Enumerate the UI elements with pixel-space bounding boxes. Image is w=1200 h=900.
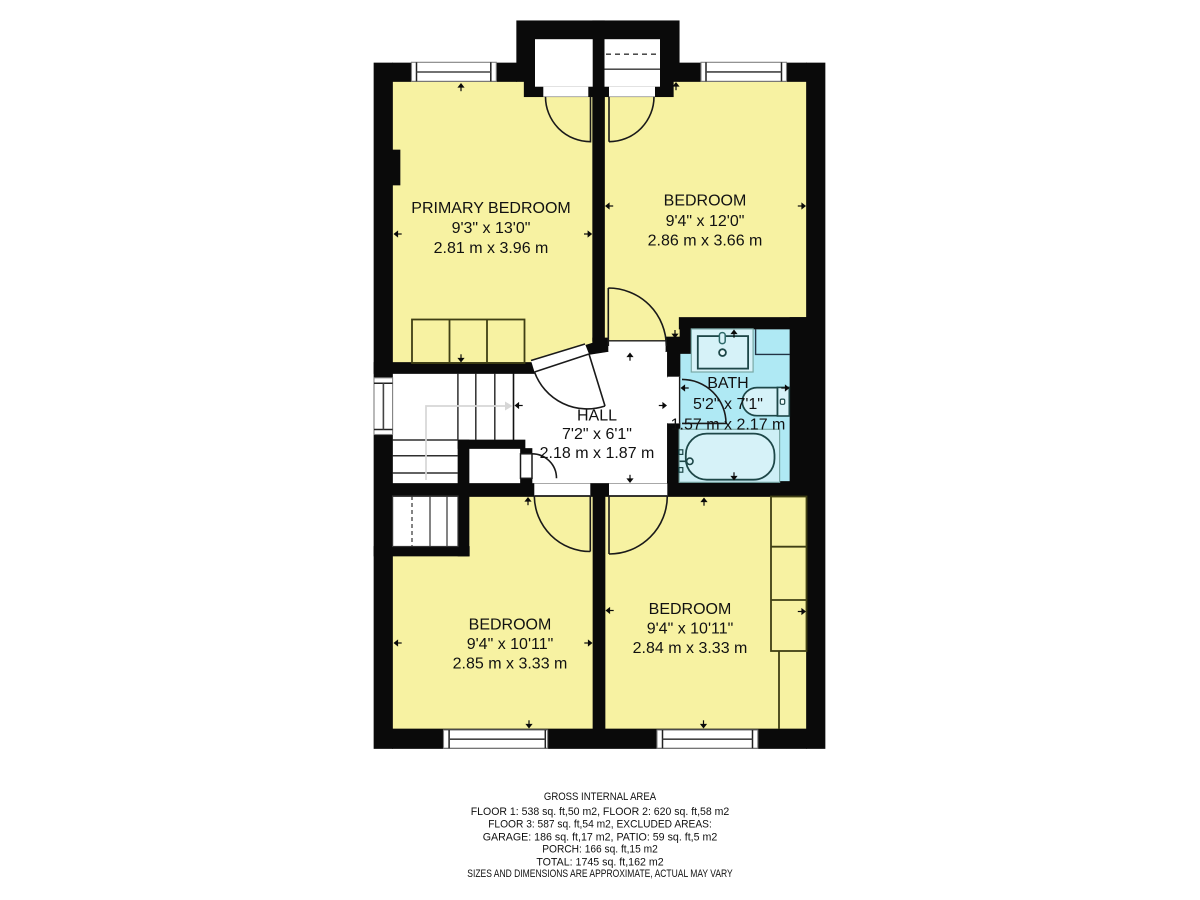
svg-text:9'3" x 13'0": 9'3" x 13'0" bbox=[452, 220, 531, 237]
svg-text:TOTAL: 1745 sq. ft,162 m2: TOTAL: 1745 sq. ft,162 m2 bbox=[536, 856, 663, 868]
svg-text:FLOOR 1: 538 sq. ft,50 m2, FLO: FLOOR 1: 538 sq. ft,50 m2, FLOOR 2: 620 … bbox=[471, 806, 730, 818]
svg-text:1.57 m x 2.17 m: 1.57 m x 2.17 m bbox=[671, 417, 786, 434]
svg-text:2.86 m x 3.66 m: 2.86 m x 3.66 m bbox=[648, 233, 763, 250]
svg-text:SIZES AND DIMENSIONS ARE APPRO: SIZES AND DIMENSIONS ARE APPROXIMATE, AC… bbox=[467, 868, 733, 880]
svg-text:5'2" x 7'1": 5'2" x 7'1" bbox=[693, 396, 763, 413]
svg-text:BEDROOM: BEDROOM bbox=[649, 601, 732, 618]
svg-text:2.84 m x 3.33 m: 2.84 m x 3.33 m bbox=[633, 640, 748, 657]
svg-text:PORCH: 166 sq. ft,15 m2: PORCH: 166 sq. ft,15 m2 bbox=[542, 844, 658, 856]
svg-text:7'2" x 6'1": 7'2" x 6'1" bbox=[562, 426, 632, 443]
svg-text:2.81 m x 3.96 m: 2.81 m x 3.96 m bbox=[434, 240, 549, 257]
svg-text:HALL: HALL bbox=[577, 408, 617, 425]
svg-text:9'4" x 10'11": 9'4" x 10'11" bbox=[647, 621, 734, 638]
svg-text:GARAGE: 186 sq. ft,17 m2, PATI: GARAGE: 186 sq. ft,17 m2, PATIO: 59 sq. … bbox=[483, 832, 718, 844]
svg-text:BEDROOM: BEDROOM bbox=[469, 617, 552, 634]
svg-text:FLOOR 3: 587 sq. ft,54 m2, EXC: FLOOR 3: 587 sq. ft,54 m2, EXCLUDED AREA… bbox=[488, 819, 712, 831]
svg-text:PRIMARY BEDROOM: PRIMARY BEDROOM bbox=[411, 200, 570, 217]
svg-text:9'4" x 10'11": 9'4" x 10'11" bbox=[467, 636, 554, 653]
svg-text:GROSS INTERNAL AREA: GROSS INTERNAL AREA bbox=[544, 791, 657, 803]
svg-text:BATH: BATH bbox=[707, 375, 748, 392]
svg-text:2.85 m x 3.33 m: 2.85 m x 3.33 m bbox=[453, 656, 568, 673]
svg-text:BEDROOM: BEDROOM bbox=[664, 193, 747, 210]
svg-text:2.18 m x 1.87 m: 2.18 m x 1.87 m bbox=[540, 445, 655, 462]
svg-text:9'4" x 12'0": 9'4" x 12'0" bbox=[666, 213, 745, 230]
